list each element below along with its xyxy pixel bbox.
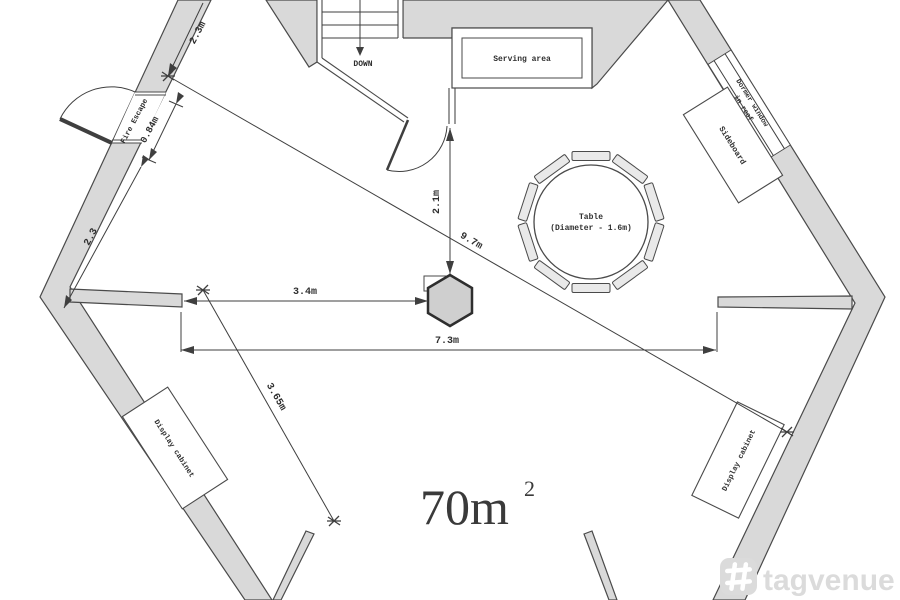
door-leaf: [60, 119, 112, 143]
table-label-1: Table: [579, 213, 603, 222]
dim-3-65m: 3.65m: [263, 382, 288, 413]
area-superscript: 2: [524, 476, 535, 501]
dim-7-3m: 7.3m: [435, 336, 459, 347]
door-swing-arc: [60, 87, 135, 119]
wall-stub-left: [70, 289, 182, 307]
tagvenue-watermark: tagvenue: [720, 558, 895, 597]
floorplan-svg: Fire Escape DOWN Serving area Dormer win…: [0, 0, 900, 600]
door-leaf-bottom-left: [273, 531, 314, 600]
dim-9-7m: 9.7m: [458, 231, 484, 253]
roof-void-left-wedge: [266, 0, 317, 67]
serving-area: Serving area: [452, 28, 592, 88]
column: [424, 275, 472, 326]
hex-column: [428, 275, 472, 326]
wall-stub-right: [718, 296, 852, 309]
floorplan-page: Fire Escape DOWN Serving area Dormer win…: [0, 0, 900, 600]
area-label: 70m 2: [420, 476, 535, 535]
dim-3-4m: 3.4m: [293, 287, 317, 298]
table-label-2: (Diameter - 1.6m): [550, 224, 632, 233]
stair-direction-arrow: [356, 47, 364, 56]
interior-door-leaf: [387, 120, 408, 170]
tagvenue-hash-icon: [720, 558, 757, 595]
tagvenue-brand-text: tagvenue: [763, 564, 895, 597]
serving-area-label: Serving area: [493, 55, 551, 64]
dining-table: Table (Diameter - 1.6m): [518, 152, 664, 293]
dim-2-1m: 2.1m: [432, 190, 443, 214]
door-leaf-bottom-right: [584, 531, 617, 600]
area-value: 70m: [420, 479, 509, 535]
down-label: DOWN: [353, 60, 372, 69]
